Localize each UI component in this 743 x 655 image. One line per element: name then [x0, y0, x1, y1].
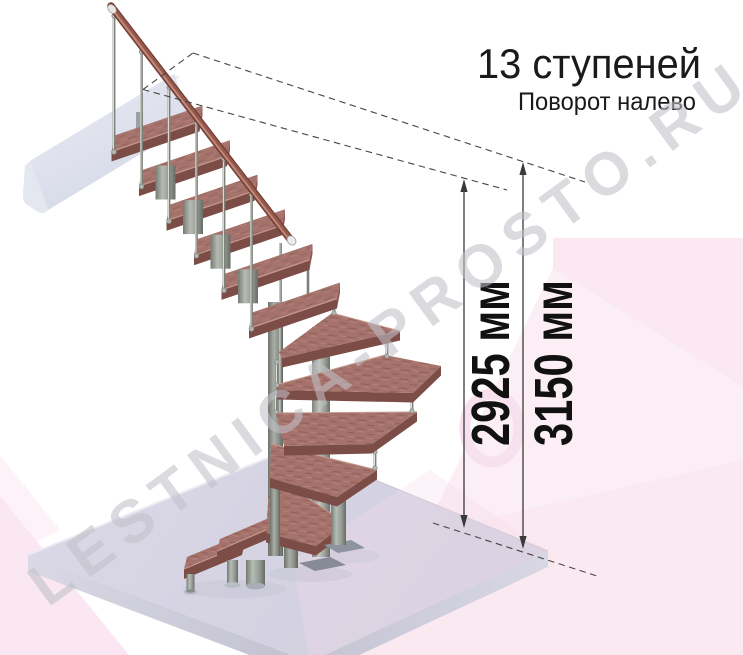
svg-text:2925 мм: 2925 мм: [461, 280, 521, 446]
svg-text:3150 мм: 3150 мм: [524, 280, 584, 446]
svg-text:13 ступеней: 13 ступеней: [477, 40, 701, 87]
